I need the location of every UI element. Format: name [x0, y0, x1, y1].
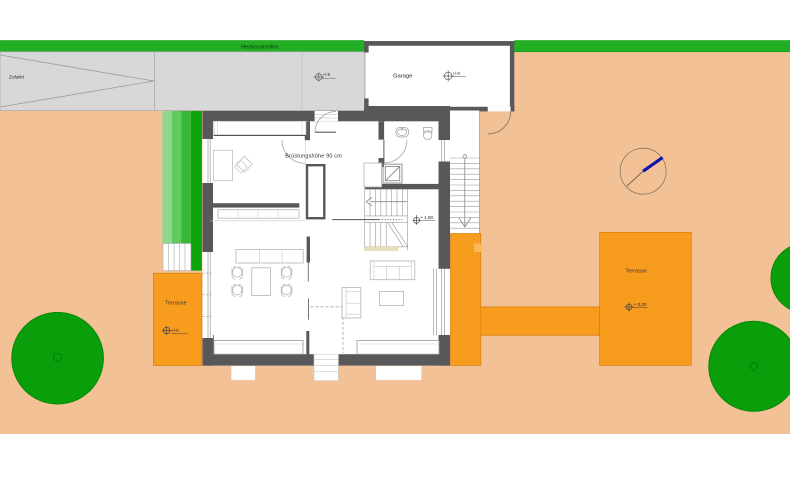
svg-text:+/-0: +/-0 — [453, 71, 461, 76]
svg-text:+ 0,20: + 0,20 — [634, 302, 647, 307]
svg-text:Brüstungshöhe 90 cm: Brüstungshöhe 90 cm — [285, 153, 342, 159]
svg-text:Garage: Garage — [393, 73, 412, 79]
svg-text:Heckenstreifen: Heckenstreifen — [241, 45, 278, 51]
svg-text:+/-0: +/-0 — [323, 72, 331, 77]
svg-text:Terrasse: Terrasse — [165, 300, 187, 306]
svg-text:+ 1,60: + 1,60 — [420, 215, 433, 220]
svg-text:+/-0: +/-0 — [171, 328, 179, 333]
svg-text:Terrasse: Terrasse — [626, 269, 648, 275]
svg-text:Zufahrt: Zufahrt — [9, 75, 25, 81]
